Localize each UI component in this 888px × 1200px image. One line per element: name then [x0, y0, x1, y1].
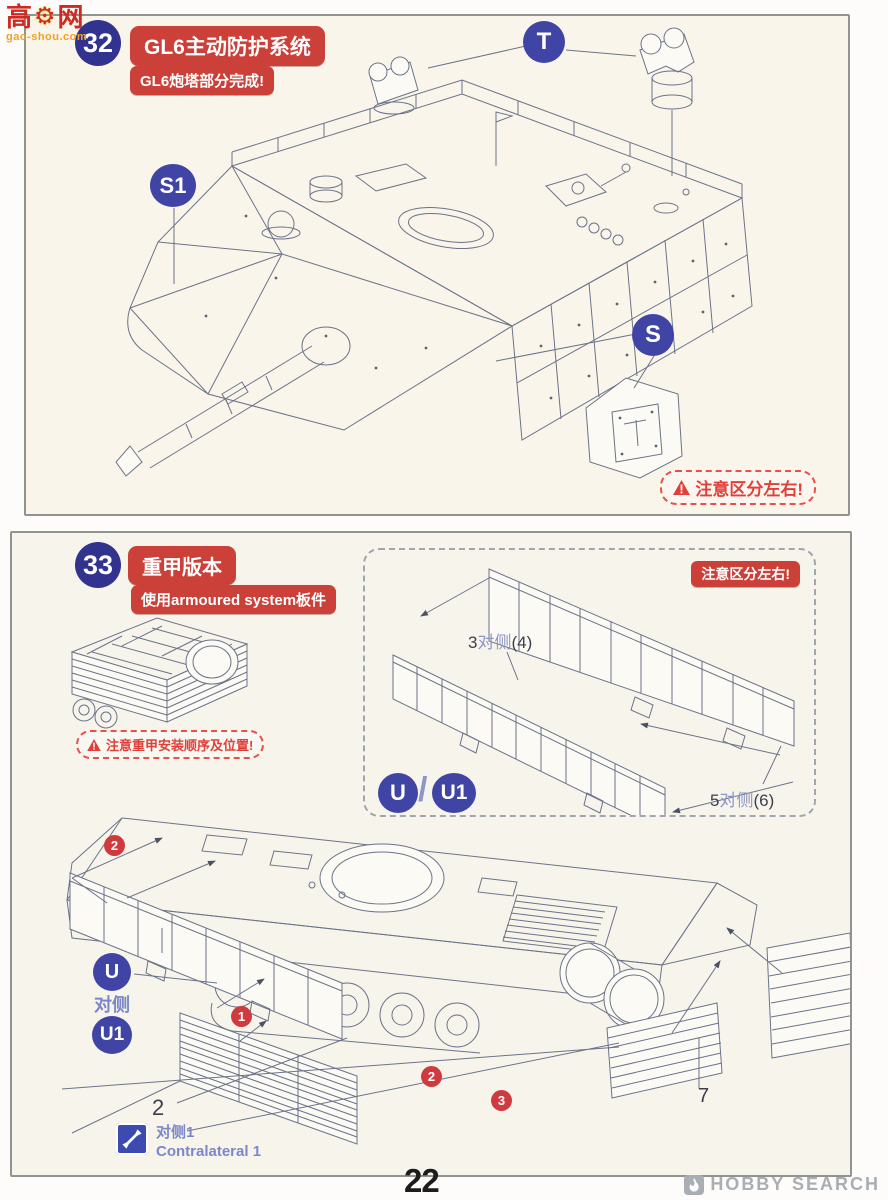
warning-armour-order-text: 注意重甲安装顺序及位置! [106, 735, 253, 754]
step-title: GL6主动防护系统 [130, 26, 325, 66]
step-order-1: 1 [231, 1006, 252, 1027]
part-number-7: 7 [698, 1085, 709, 1108]
part-number-2: 2 [152, 1095, 164, 1121]
flame-icon [684, 1175, 704, 1195]
warning-left-right-inset: 注意区分左右! [691, 561, 800, 587]
step-32-panel: 32 GL6主动防护系统 GL6炮塔部分完成! T S1 S 注意区分左右! [24, 14, 850, 516]
contralateral-note: 对侧1 Contralateral 1 [116, 1123, 261, 1161]
callout-part-T: T [523, 21, 565, 63]
step-title: 重甲版本 [128, 546, 236, 585]
double-arrow-icon [116, 1123, 148, 1155]
step-number-badge: 33 [75, 542, 121, 588]
contralateral-en-line: Contralateral 1 [156, 1142, 261, 1161]
part-label-3: 3对侧(4) [468, 628, 532, 653]
callout-part-U: U [93, 953, 131, 991]
step33-closeup-illustration [62, 614, 257, 731]
gaoshou-cn-suffix: 网 [58, 4, 84, 30]
contralateral-zh-line: 对侧1 [156, 1123, 261, 1142]
warning-triangle-icon [673, 480, 690, 495]
warning-triangle-icon [87, 739, 101, 751]
gear-icon: ⚙ [34, 5, 56, 29]
callout-part-U1: U1 [92, 1016, 132, 1054]
warning-armour-order: 注意重甲安装顺序及位置! [76, 730, 264, 759]
slat-fence-illustration [365, 550, 814, 815]
step-order-3: 3 [491, 1090, 512, 1111]
part-label-5: 5对侧(6) [710, 786, 774, 811]
step-order-2-bottom: 2 [421, 1066, 442, 1087]
callout-part-U-inset: U [378, 773, 418, 813]
callout-part-S: S [632, 314, 674, 356]
step-subtitle: 使用armoured system板件 [131, 585, 336, 614]
gaoshou-cn-prefix: 高 [6, 4, 32, 30]
step-subtitle: GL6炮塔部分完成! [130, 66, 274, 95]
gaoshou-domain: gao-shou.com [6, 32, 87, 43]
callout-separator: / [418, 771, 427, 810]
step-order-2-top: 2 [104, 835, 125, 856]
part-U-side-label: 对侧 [82, 991, 142, 1017]
warning-left-right-32-text: 注意区分左右! [695, 475, 803, 500]
gaoshou-watermark: 高 ⚙ 网 gao-shou.com [6, 4, 87, 43]
instruction-page: 高 ⚙ 网 gao-shou.com [0, 0, 888, 1200]
slat-parts-inset: 注意区分左右! 3对侧(4) 5对侧(6) [363, 548, 816, 817]
callout-part-S1: S1 [150, 164, 196, 207]
hobbysearch-label: HOBBY SEARCH [710, 1174, 880, 1195]
hobbysearch-watermark: HOBBY SEARCH [684, 1174, 880, 1195]
step-33-panel: 33 重甲版本 使用armoured system板件 注意重甲安装顺序及位置! [10, 531, 852, 1177]
warning-left-right-32: 注意区分左右! [660, 470, 816, 505]
page-number: 22 [404, 1162, 439, 1200]
callout-part-U1-inset: U1 [432, 773, 476, 813]
